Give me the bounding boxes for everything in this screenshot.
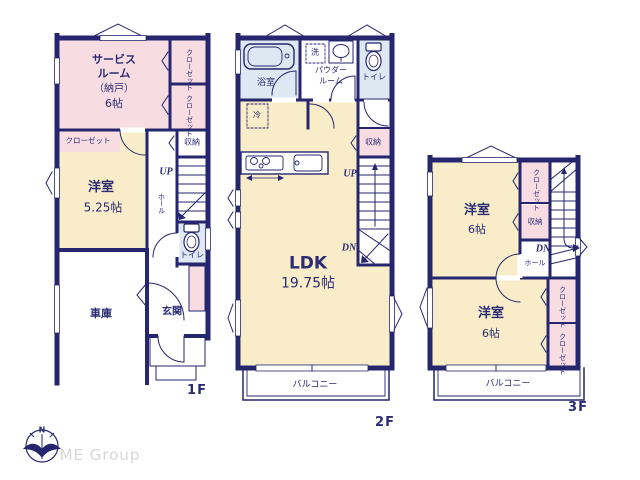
balcony-label: バルコニー [486,380,531,390]
stairs-up-label: UP [159,167,172,178]
company-logo-text: ME Group [60,447,141,464]
stairs-down-label: DN [342,243,356,254]
stairs-up-label: UP [343,169,356,180]
service-room-label-line1: サービス [92,54,136,66]
toilet-icon [184,224,199,252]
western-room-label: 洋室 [464,204,490,218]
floor-label-3f: 3F [568,401,588,415]
washbasin-icon [329,41,353,63]
powder-room-label-line1: パウダー [315,67,347,76]
closet-label: クローゼット [185,95,194,119]
closet-label: クローゼット [558,333,567,357]
hall-label: ホール [157,191,166,215]
closet-label: クローゼット [185,49,194,73]
western-room-size: 5.25帖 [84,201,123,214]
storage-label: 収納 [184,139,200,148]
ldk-label: LDK [289,255,327,274]
toilet-label: トイレ [180,252,204,261]
western-room-label: 洋室 [478,307,504,321]
fridge-label: 冷 [253,112,261,121]
western-room-label: 洋室 [88,181,114,195]
bath-label: 浴室 [257,79,275,89]
floorplan-page: サービス ルーム （納戸） 6帖 クローゼット クローゼット クローゼット 収納… [0,0,640,480]
garage-label: 車庫 [90,308,112,320]
powder-room-label-line2: ルーム [319,78,343,87]
storage-label: 収納 [528,218,543,226]
ldk-size: 19.75帖 [281,276,335,291]
washer-label: 洗 [311,49,319,58]
service-room-size: 6帖 [105,98,123,110]
compass-north-label: N [39,427,46,436]
floor-label-1f: 1F [187,384,207,398]
storage-label: 収納 [365,139,381,148]
toilet-icon [366,43,381,71]
shoe-cabinet [189,266,205,311]
closet-label: クローゼット [532,169,541,193]
gable-vent-icon [464,146,518,159]
western-room-size: 6帖 [482,328,500,340]
balcony-label: バルコニー [293,381,338,391]
service-room-label-line3: （納戸） [94,84,134,95]
western-room-size: 6帖 [468,224,486,236]
closet-label: クローゼット [66,137,111,145]
toilet-label: トイレ [362,74,386,83]
closet-label: クローゼット [558,286,567,310]
stairs-down-label: DN [536,244,550,255]
hall-label: ホール [525,260,546,268]
service-room-label-line2: ルーム [98,68,131,80]
floor-label-2f: 2F [375,416,395,430]
entrance-label: 玄関 [162,307,182,318]
porch [150,336,205,380]
